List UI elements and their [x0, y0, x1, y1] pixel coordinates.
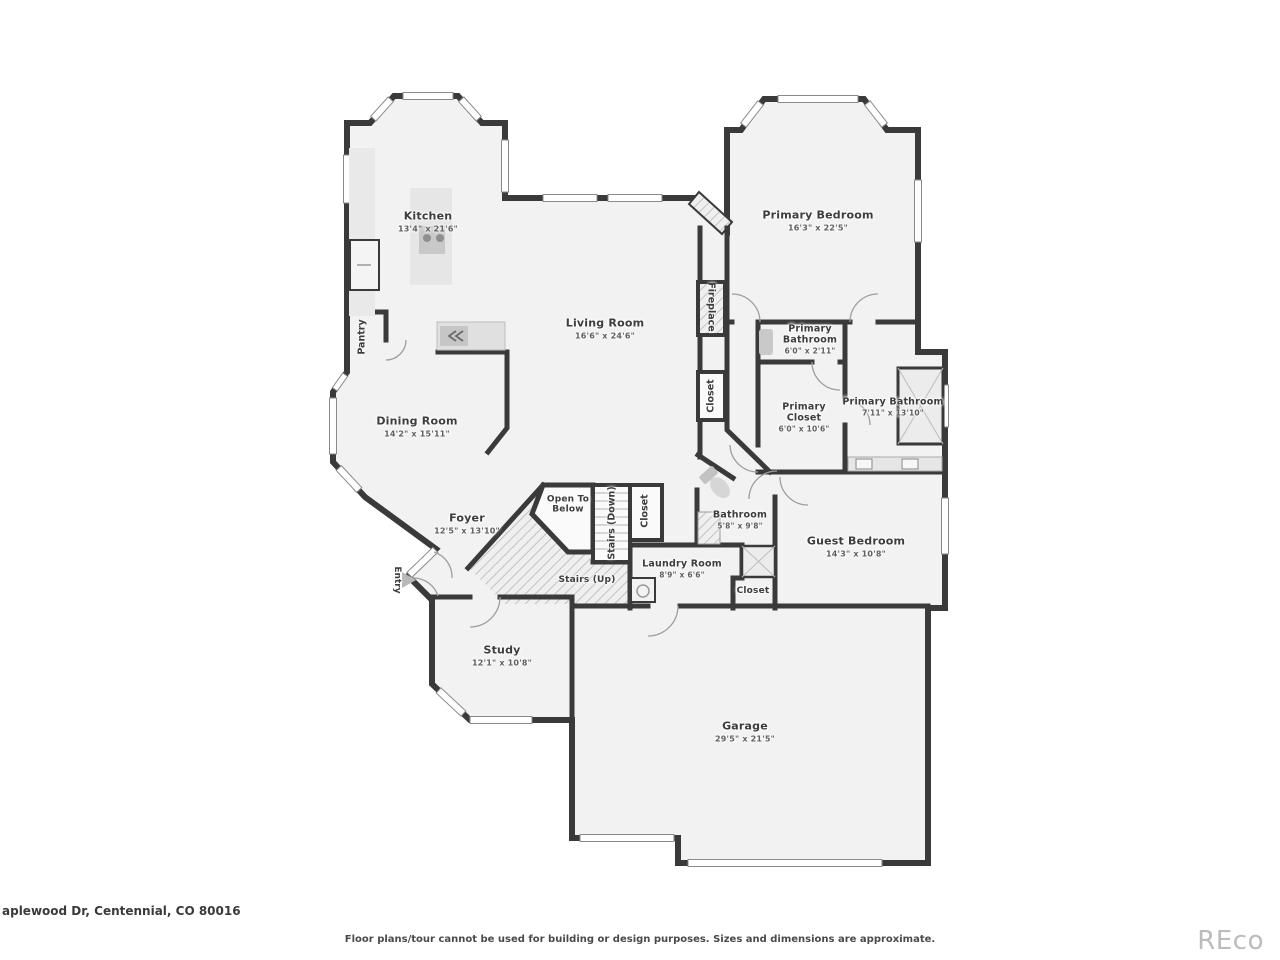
floor-plan-page: Kitchen13'4" x 21'6" Living Room16'6" x … [0, 0, 1280, 960]
garage-door-small [580, 835, 674, 842]
dishwasher [440, 326, 468, 346]
fireplace-box [698, 282, 725, 335]
reco-watermark: REco [1197, 926, 1264, 956]
disclaimer-text: Floor plans/tour cannot be used for buil… [0, 934, 1280, 945]
bathroom-shower [742, 546, 775, 577]
stairs-down-run [593, 485, 630, 562]
bathroom-vanity [698, 512, 720, 544]
sink [902, 459, 918, 469]
powder-fixture [759, 329, 773, 355]
sink [856, 459, 872, 469]
living-closet-box [698, 372, 725, 420]
property-address: aplewood Dr, Centennial, CO 80016 [2, 904, 241, 918]
primary-shower [898, 368, 943, 444]
floor-plan-drawing [0, 0, 1280, 960]
garage-door-large [688, 860, 882, 867]
stairs-closet-box [630, 485, 662, 540]
washer [631, 578, 655, 602]
